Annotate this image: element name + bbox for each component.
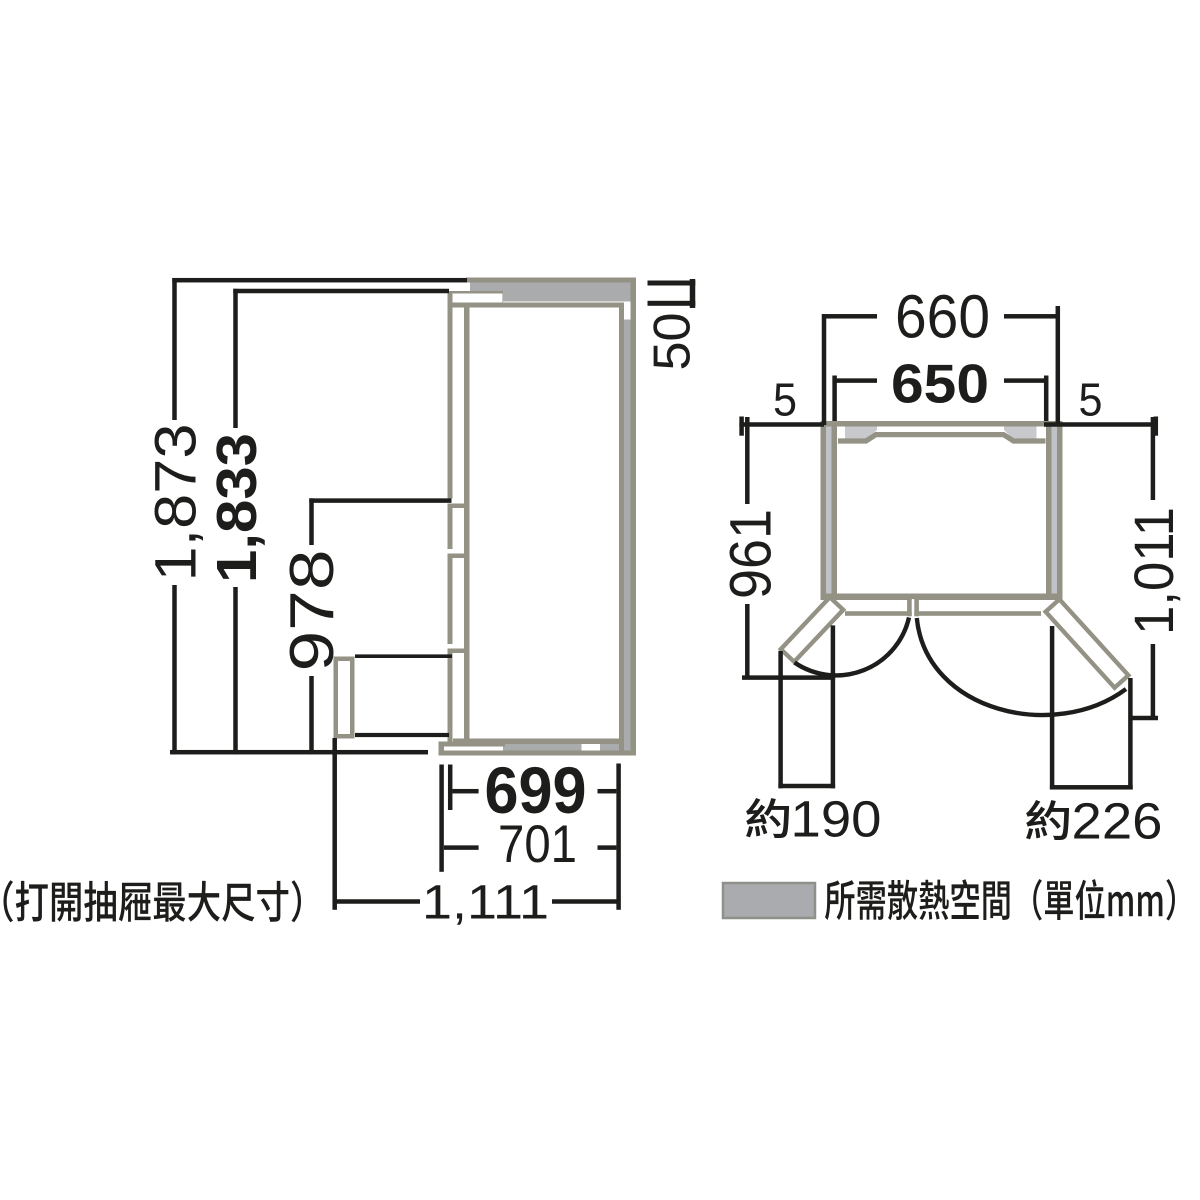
svg-text:5: 5 [1079, 374, 1103, 426]
svg-text:1,873: 1,873 [144, 424, 209, 582]
svg-text:650: 650 [891, 353, 989, 415]
svg-text:660: 660 [895, 283, 990, 351]
svg-text:190: 190 [791, 791, 882, 848]
svg-text:1,011: 1,011 [1122, 507, 1185, 635]
svg-text:961: 961 [718, 509, 783, 599]
svg-text:226: 226 [1072, 793, 1163, 850]
svg-text:50: 50 [644, 313, 702, 371]
svg-text:1,111: 1,111 [422, 876, 549, 930]
svg-text:1,833: 1,833 [205, 433, 269, 583]
svg-text:5: 5 [773, 374, 797, 426]
svg-text:978: 978 [278, 550, 347, 672]
svg-text:701: 701 [498, 815, 577, 874]
